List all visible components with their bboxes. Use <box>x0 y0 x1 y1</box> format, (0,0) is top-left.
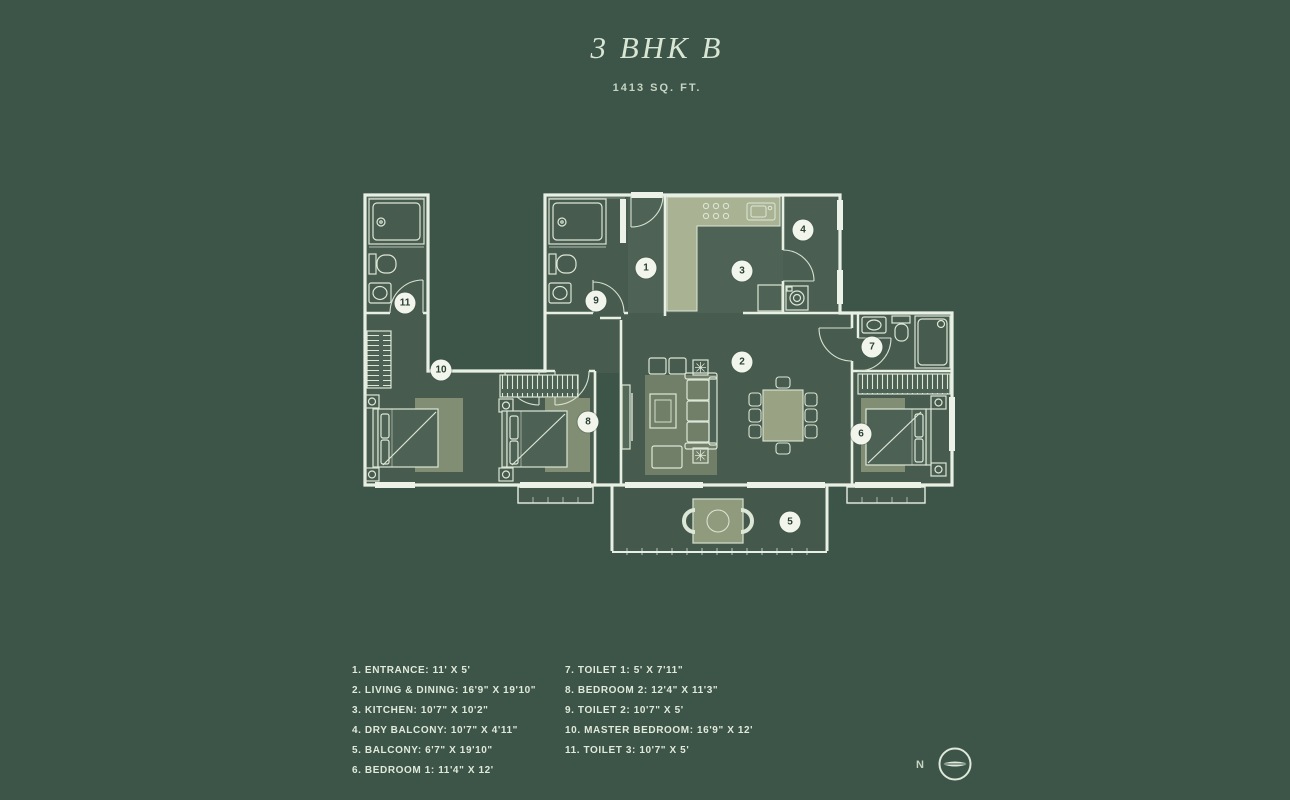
bed <box>502 411 567 467</box>
page-title: 3 BHK B <box>24 30 1290 66</box>
legend-item: 6. BEDROOM 1: 11'4" X 12' <box>352 766 536 776</box>
compass-icon <box>940 749 971 780</box>
master-wardrobe <box>367 331 391 388</box>
north-label: N <box>916 759 924 771</box>
window <box>375 482 415 488</box>
floor-fills <box>365 195 952 551</box>
window <box>949 397 955 451</box>
floor-plan: 1234567891011 <box>355 183 975 575</box>
room-number-badge: 7 <box>862 337 883 358</box>
balcony-table <box>693 499 743 543</box>
page-subtitle: 1413 SQ. FT. <box>24 82 1290 94</box>
window <box>620 199 626 243</box>
page-header: 3 BHK B 1413 SQ. FT. <box>24 0 1290 94</box>
room-number-badge: 9 <box>586 291 607 312</box>
legend-item: 8. BEDROOM 2: 12'4" X 11'3" <box>565 686 753 696</box>
dining-table <box>763 390 803 441</box>
legend-item: 4. DRY BALCONY: 10'7" X 4'11" <box>352 726 536 736</box>
legend-column-2: 7. TOILET 1: 5' X 7'11"8. BEDROOM 2: 12'… <box>565 666 753 766</box>
room-number-badge: 10 <box>431 360 452 381</box>
legend-item: 10. MASTER BEDROOM: 16'9" X 12' <box>565 726 753 736</box>
bedroom1-wardrobe <box>858 374 950 394</box>
compass: N <box>908 740 998 788</box>
dry-balcony-floor <box>783 195 840 313</box>
entrance-threshold <box>631 192 663 198</box>
room-number-badge: 8 <box>578 412 599 433</box>
bedroom2-wardrobe <box>500 375 578 397</box>
room-number-badge: 6 <box>851 424 872 445</box>
legend-item: 2. LIVING & DINING: 16'9" X 19'10" <box>352 686 536 696</box>
legend-item: 7. TOILET 1: 5' X 7'11" <box>565 666 753 676</box>
service-shaft <box>597 373 619 485</box>
window <box>837 270 843 304</box>
balcony-set <box>684 499 752 543</box>
room-number-badge: 11 <box>395 293 416 314</box>
legend-item: 3. KITCHEN: 10'7" X 10'2" <box>352 706 536 716</box>
room-number-badge: 4 <box>793 220 814 241</box>
window <box>625 482 703 488</box>
page-background: 3 BHK B 1413 SQ. FT. <box>0 0 1290 800</box>
legend-item: 11. TOILET 3: 10'7" X 5' <box>565 746 753 756</box>
legend-item: 1. ENTRANCE: 11' X 5' <box>352 666 536 676</box>
legend-item: 5. BALCONY: 6'7" X 19'10" <box>352 746 536 756</box>
legend-column-1: 1. ENTRANCE: 11' X 5'2. LIVING & DINING:… <box>352 666 536 786</box>
window <box>747 482 825 488</box>
room-number-badge: 5 <box>780 512 801 533</box>
legend-item: 9. TOILET 2: 10'7" X 5' <box>565 706 753 716</box>
bed <box>866 409 931 465</box>
room-number-badge: 1 <box>636 258 657 279</box>
living-rug <box>645 375 717 475</box>
room-number-badge: 2 <box>732 352 753 373</box>
bed <box>373 409 438 467</box>
window <box>837 200 843 230</box>
room-number-badge: 3 <box>732 261 753 282</box>
floor-plan-drawing <box>355 183 975 575</box>
tv-unit <box>622 385 632 449</box>
